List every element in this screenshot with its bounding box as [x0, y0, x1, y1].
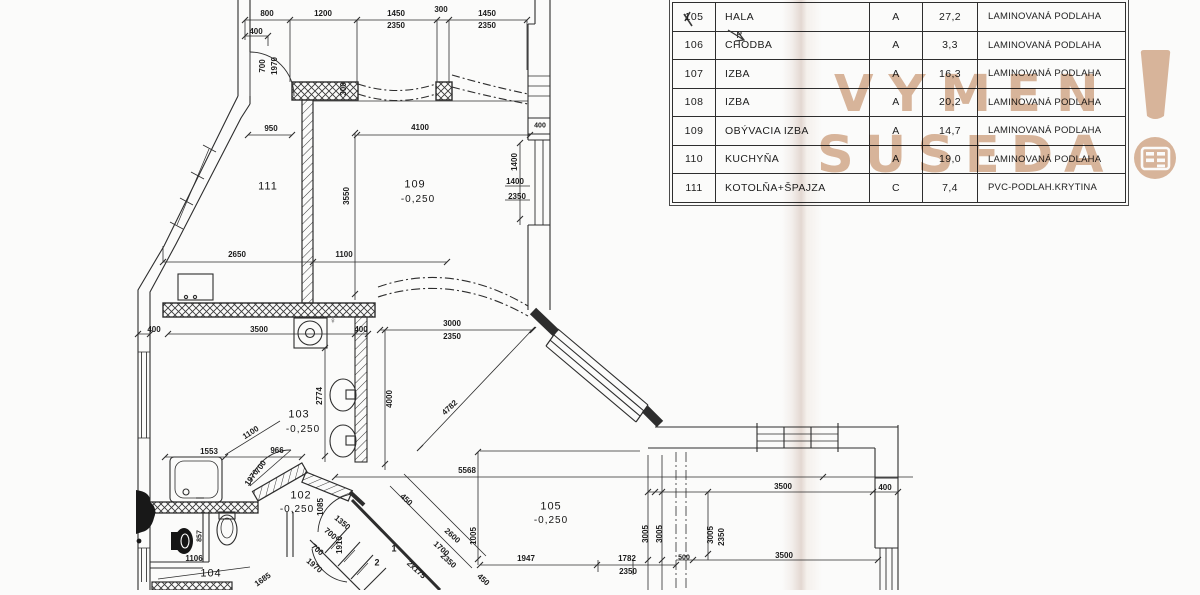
window-diagonal-left [170, 145, 216, 229]
cell-no: 110 [673, 146, 716, 174]
wall-diagonal-hatch [302, 472, 352, 501]
cell-area: 16,3 [923, 60, 978, 88]
table-row: 109OBÝVACIA IZBAA14,7LAMINOVANÁ PODLAHA [673, 117, 1125, 146]
table-row: 106CHODBAA3,3LAMINOVANÁ PODLAHA [673, 32, 1125, 61]
ink-blob [136, 490, 155, 534]
wall-crosshatch-mid [163, 303, 375, 317]
cell-floor: LAMINOVANÁ PODLAHA [978, 146, 1125, 174]
table-row: 111KOTOLŇA+ŠPAJZAC7,4PVC-PODLAH.KRYTINA [673, 174, 1125, 202]
wall-right-top [528, 0, 550, 310]
legend-table: 105HALAA27,2LAMINOVANÁ PODLAHA106CHODBAA… [672, 2, 1126, 203]
table-row: 110KUCHYŇAA19,0LAMINOVANÁ PODLAHA [673, 146, 1125, 175]
cell-area: 19,0 [923, 146, 978, 174]
cell-area: 7,4 [923, 174, 978, 202]
wall-diagonal-window [533, 311, 660, 424]
wall-bathroom-right [355, 317, 367, 462]
table-row: 107IZBAA16,3LAMINOVANÁ PODLAHA [673, 60, 1125, 89]
cell-no: 107 [673, 60, 716, 88]
masonry-pier [436, 82, 452, 100]
cell-cat: A [870, 117, 923, 145]
legend-table-body: 105HALAA27,2LAMINOVANÁ PODLAHA106CHODBAA… [673, 3, 1125, 202]
cell-floor: PVC-PODLAH.KRYTINA [978, 174, 1125, 202]
wall-crosshatch-bottom [152, 582, 232, 590]
washbasin [330, 379, 356, 411]
table-row: 108IZBAA20,2LAMINOVANÁ PODLAHA [673, 89, 1125, 118]
wall-diagonal-hatch [253, 463, 308, 501]
cell-cat: A [870, 89, 923, 117]
washbasin [330, 425, 356, 457]
cell-name: KOTOLŇA+ŠPAJZA [716, 174, 870, 202]
wall-crosshatch-low [150, 502, 258, 513]
cell-cat: A [870, 146, 923, 174]
washing-machine [294, 318, 327, 348]
wall-bottom-right [648, 423, 898, 452]
arch-dashes-hall [378, 277, 528, 316]
toilet-dark [171, 528, 193, 554]
cell-floor: LAMINOVANÁ PODLAHA [978, 32, 1125, 60]
cell-floor: LAMINOVANÁ PODLAHA [978, 89, 1125, 117]
cell-no: 108 [673, 89, 716, 117]
cell-name: KUCHYŇA [716, 146, 870, 174]
cell-no: 105 [673, 3, 716, 31]
cell-no: 109 [673, 117, 716, 145]
cell-name: IZBA [716, 60, 870, 88]
cell-cat: A [870, 32, 923, 60]
stove [178, 274, 213, 300]
wall-right-outer [875, 425, 898, 590]
table-row: 105HALAA27,2LAMINOVANÁ PODLAHA [673, 3, 1125, 32]
cell-name: HALA [716, 3, 870, 31]
cell-no: 106 [673, 32, 716, 60]
scan-artifacts [136, 490, 155, 543]
cell-name: OBÝVACIA IZBA [716, 117, 870, 145]
cell-area: 27,2 [923, 3, 978, 31]
window-left-wall [138, 352, 150, 582]
toilet [217, 512, 237, 545]
cell-cat: A [870, 3, 923, 31]
cell-floor: LAMINOVANÁ PODLAHA [978, 3, 1125, 31]
wall-interior-vertical [302, 100, 313, 303]
cell-floor: LAMINOVANÁ PODLAHA [978, 60, 1125, 88]
cell-floor: LAMINOVANÁ PODLAHA [978, 117, 1125, 145]
cell-cat: A [870, 60, 923, 88]
cell-no: 111 [673, 174, 716, 202]
bathtub [170, 457, 222, 502]
masonry-pier [292, 82, 358, 100]
door-arc-111 [250, 52, 294, 96]
cell-name: IZBA [716, 89, 870, 117]
cell-area: 3,3 [923, 32, 978, 60]
cell-area: 14,7 [923, 117, 978, 145]
door-arc-102 [312, 494, 352, 582]
cell-cat: C [870, 174, 923, 202]
cell-name: CHODBA [716, 32, 870, 60]
cell-area: 20,2 [923, 89, 978, 117]
